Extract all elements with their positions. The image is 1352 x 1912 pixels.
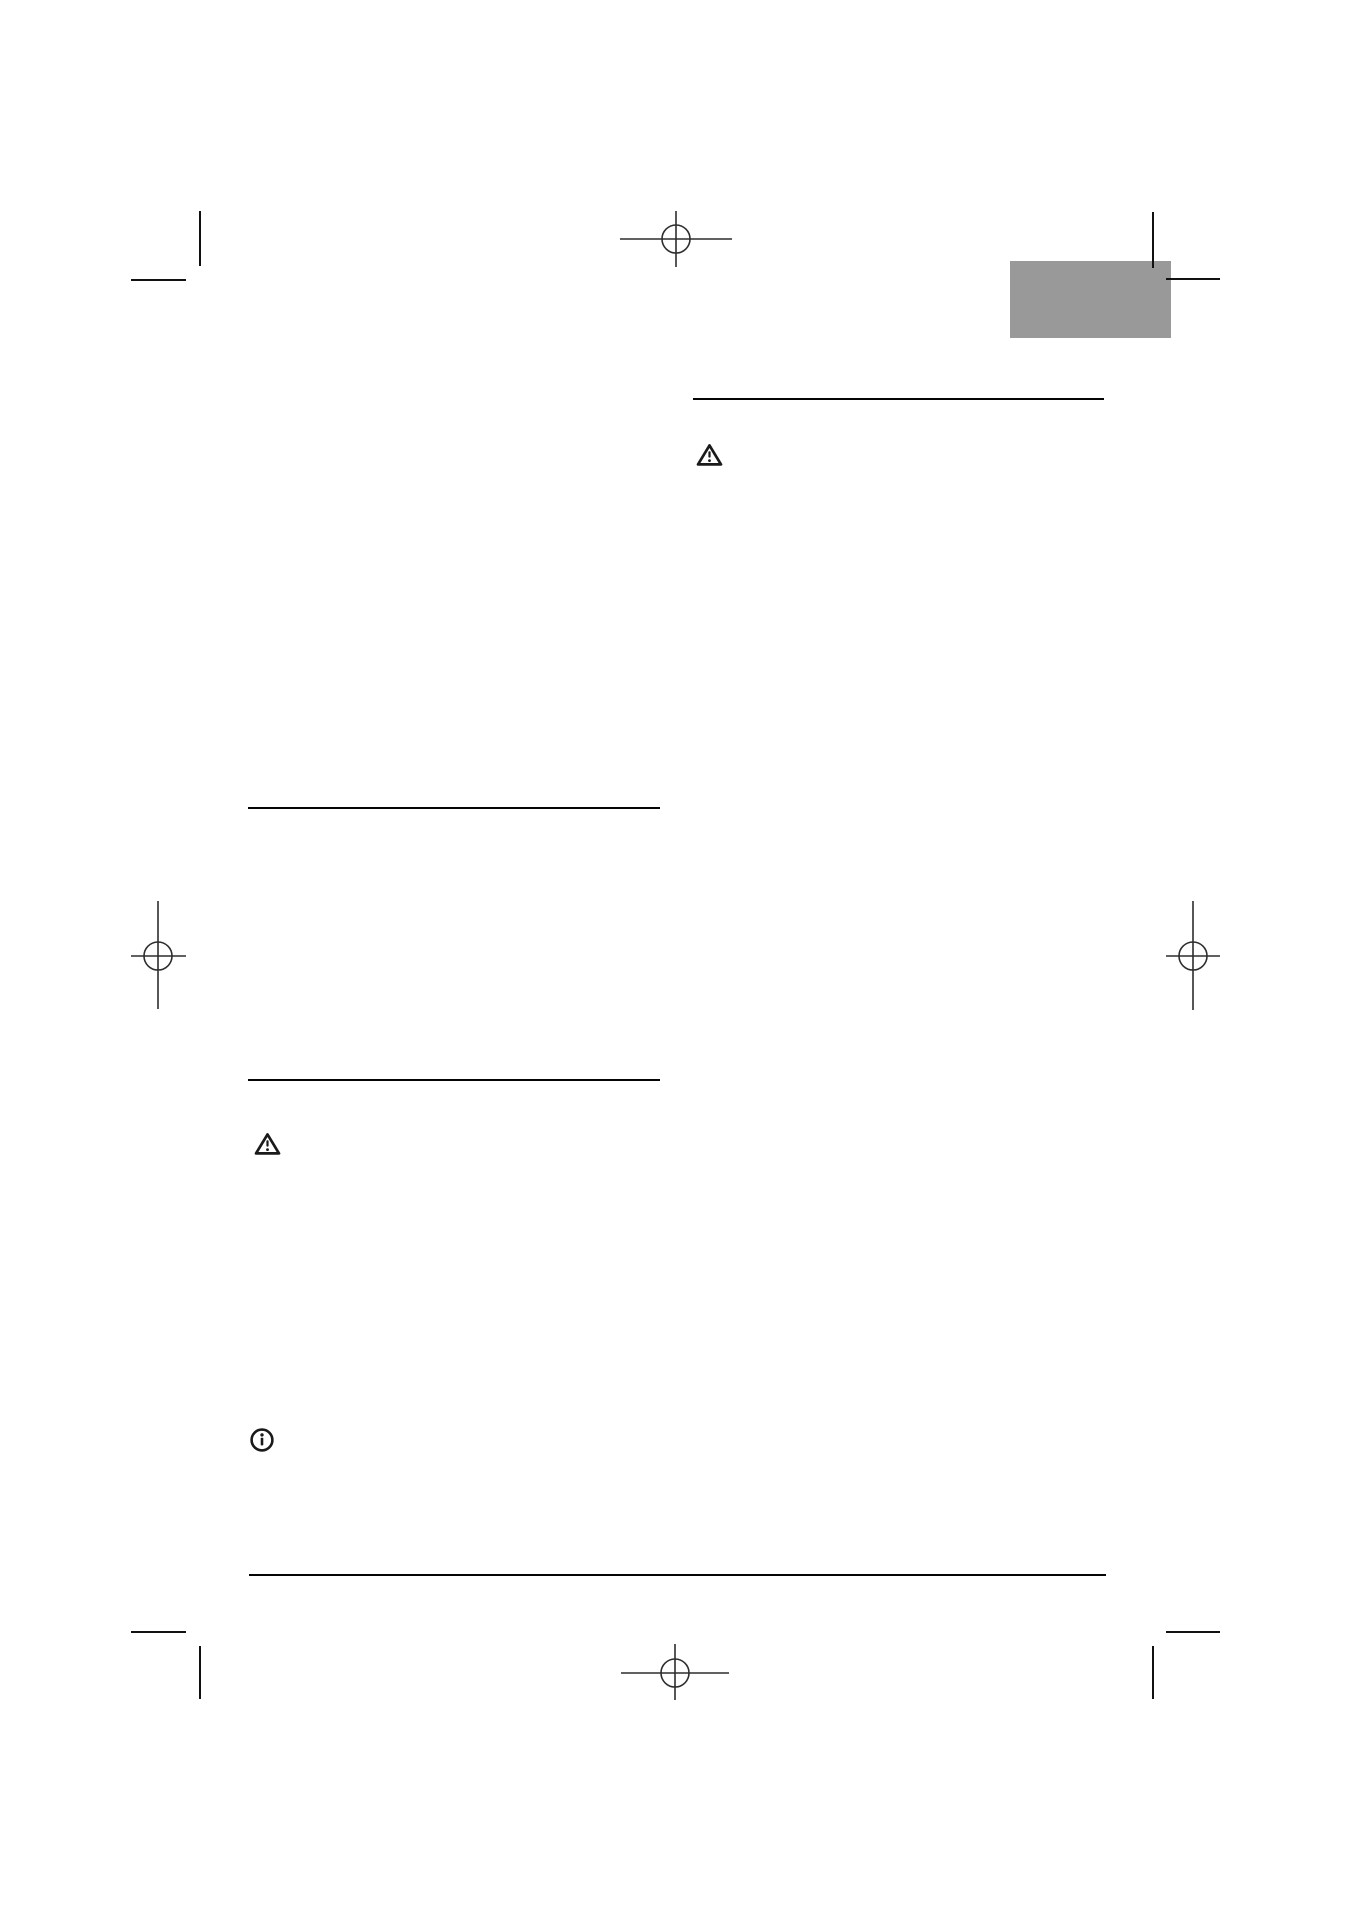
registration-mark-top-icon xyxy=(619,209,733,269)
crop-mark-top-right-vertical xyxy=(1152,212,1154,268)
crop-mark-bottom-right-horizontal xyxy=(1166,1631,1220,1633)
registration-mark-bottom-icon xyxy=(619,1642,731,1702)
right-column-heading-rule xyxy=(693,398,1104,400)
crop-mark-bottom-left-horizontal xyxy=(131,1631,186,1633)
registration-mark-right-icon xyxy=(1164,899,1224,1012)
warning-triangle-icon xyxy=(254,1132,281,1156)
warning-triangle-icon xyxy=(696,443,723,467)
crop-mark-top-left-horizontal xyxy=(131,279,186,281)
crop-mark-top-right-horizontal xyxy=(1166,278,1220,280)
crop-mark-top-left-vertical xyxy=(199,211,201,266)
left-column-heading-rule-1 xyxy=(248,807,660,809)
footer-rule xyxy=(249,1574,1106,1576)
info-circle-icon xyxy=(250,1428,274,1452)
left-column-heading-rule-2 xyxy=(248,1079,660,1081)
crop-mark-bottom-left-vertical xyxy=(199,1646,201,1699)
registration-mark-left-icon xyxy=(129,899,189,1011)
gray-header-block xyxy=(1010,261,1171,338)
document-page xyxy=(0,0,1352,1912)
crop-mark-bottom-right-vertical xyxy=(1152,1646,1154,1699)
